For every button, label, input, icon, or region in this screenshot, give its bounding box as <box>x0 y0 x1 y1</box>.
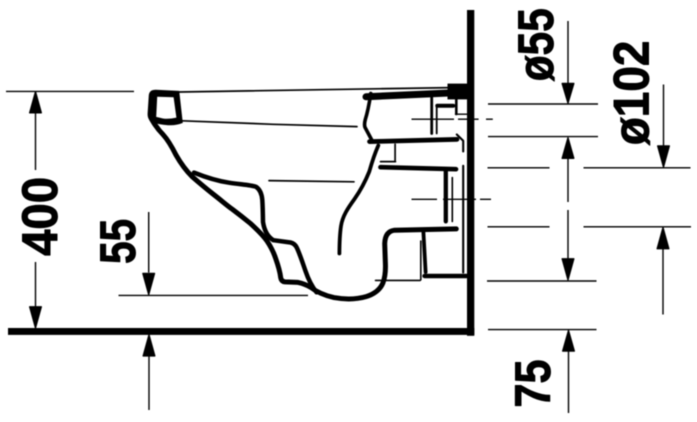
svg-text:55: 55 <box>90 219 146 264</box>
svg-text:400: 400 <box>12 177 68 256</box>
svg-text:ø55: ø55 <box>508 8 564 81</box>
svg-text:ø102: ø102 <box>605 41 660 146</box>
svg-text:75: 75 <box>505 360 561 408</box>
